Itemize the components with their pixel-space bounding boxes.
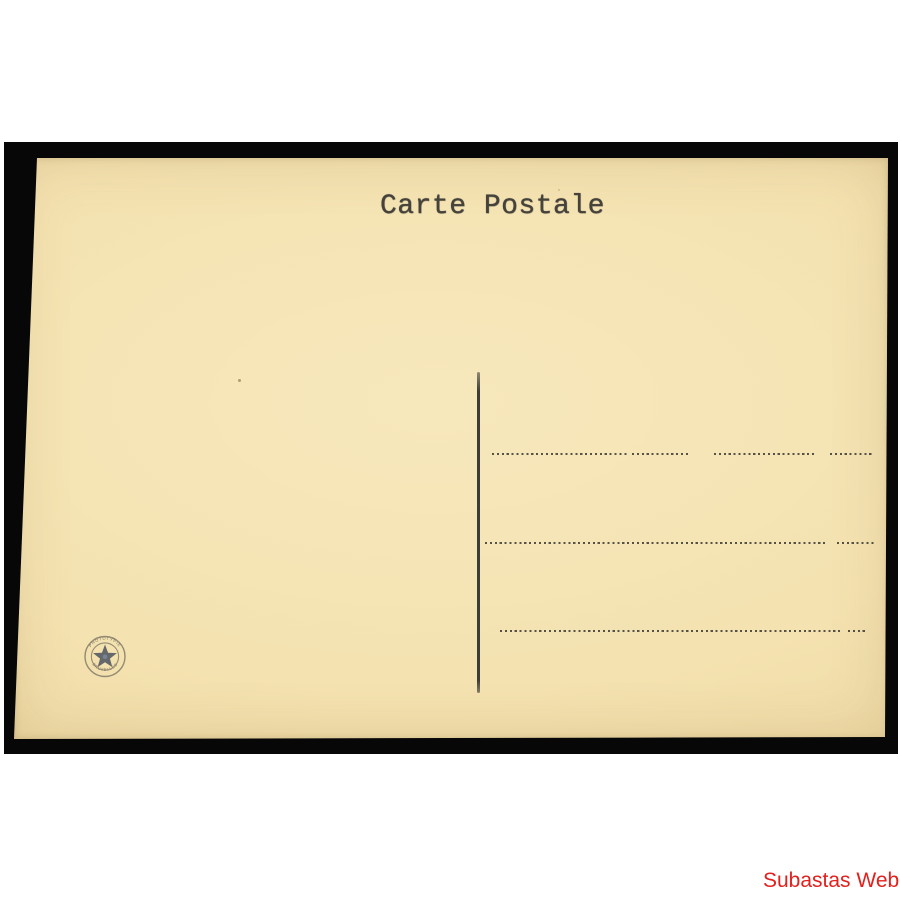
address-line-segment bbox=[485, 542, 827, 544]
listing-image: Carte Postale bbox=[0, 0, 900, 900]
star-center-dot bbox=[103, 655, 108, 660]
paper-speck bbox=[558, 189, 560, 191]
divider-line bbox=[477, 372, 480, 693]
address-line bbox=[485, 542, 874, 544]
svg-text:BRUXELLES: BRUXELLES bbox=[91, 662, 118, 672]
publisher-stamp: PHOTOTYPIE BRUXELLES bbox=[79, 630, 131, 682]
address-line-segment bbox=[830, 453, 874, 455]
address-line-segment bbox=[492, 453, 628, 455]
postcard-title: Carte Postale bbox=[380, 191, 605, 222]
address-line bbox=[500, 630, 866, 632]
address-line-segment bbox=[848, 630, 866, 632]
address-line-segment bbox=[714, 453, 816, 455]
paper-speck bbox=[238, 379, 241, 382]
address-line-segment bbox=[837, 542, 874, 544]
address-line-gap bbox=[690, 453, 714, 455]
postcard-back: Carte Postale bbox=[14, 158, 888, 739]
address-line bbox=[492, 453, 874, 455]
address-line-gap bbox=[827, 542, 837, 544]
address-line-segment bbox=[632, 453, 690, 455]
watermark-text: Subastas Web bbox=[763, 869, 899, 893]
stamp-text-bottom: BRUXELLES bbox=[91, 662, 118, 672]
address-line-segment bbox=[500, 630, 842, 632]
address-line-gap bbox=[816, 453, 830, 455]
